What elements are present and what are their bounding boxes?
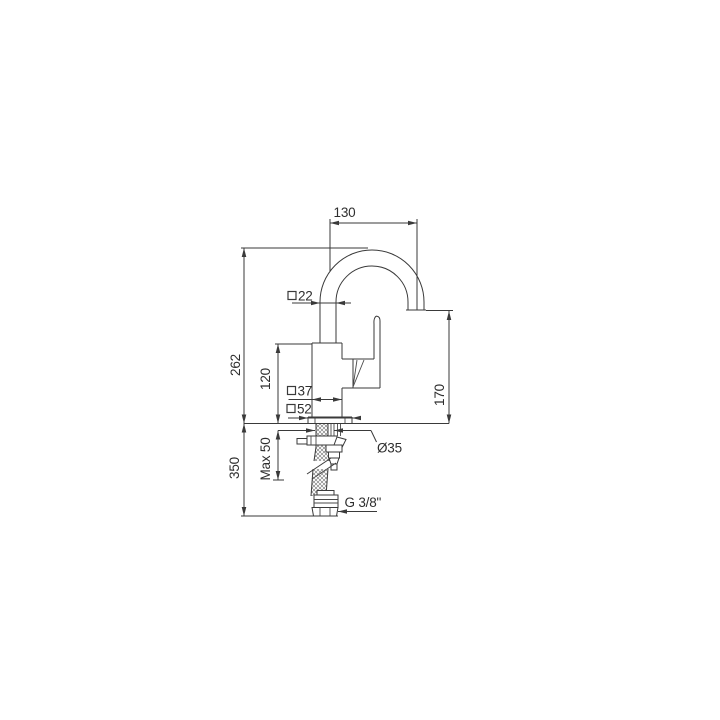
- square-symbol-icon: [288, 387, 296, 395]
- dim-height-170-label: 170: [432, 384, 447, 406]
- spout-inner-arc: [336, 266, 408, 302]
- spout-outer-arc: [320, 250, 424, 302]
- dim-height-120-label: 120: [258, 368, 273, 390]
- supply-thread-label: G 3/8": [345, 495, 382, 510]
- faucet-dimension-drawing: 130 22 262 350 120 Max 50: [0, 0, 720, 720]
- label-supply-thread: G 3/8": [338, 495, 382, 514]
- dimension-max-thickness: Max 50: [258, 431, 284, 481]
- dimension-outlet-height: 170: [426, 311, 453, 424]
- connector-nut: [312, 508, 338, 517]
- dim-spout-tube-label: 22: [298, 289, 313, 304]
- check-valve-fitting: [326, 445, 342, 452]
- dim-hole-diameter-label: Ø35: [377, 441, 402, 456]
- dim-base-52-label: 52: [297, 402, 312, 417]
- dim-spout-reach-label: 130: [334, 205, 356, 220]
- square-symbol-icon: [287, 405, 295, 413]
- dimension-spout-tube: 22: [288, 289, 351, 306]
- under-counter-assembly: [297, 424, 346, 516]
- dim-length-350-label: 350: [227, 457, 242, 479]
- hose-collar: [317, 491, 334, 496]
- mounting-bracket: [307, 436, 337, 445]
- dim-body-37-label: 37: [298, 384, 313, 399]
- technical-drawing-page: 130 22 262 350 120 Max 50: [0, 0, 720, 720]
- dim-height-262-label: 262: [228, 354, 243, 376]
- dimension-body-size: 37: [288, 384, 343, 402]
- dim-max50-label: Max 50: [258, 437, 273, 480]
- square-symbol-icon: [288, 292, 296, 300]
- dimension-spout-reach: 130: [330, 205, 417, 310]
- faucet-outline: [244, 250, 449, 424]
